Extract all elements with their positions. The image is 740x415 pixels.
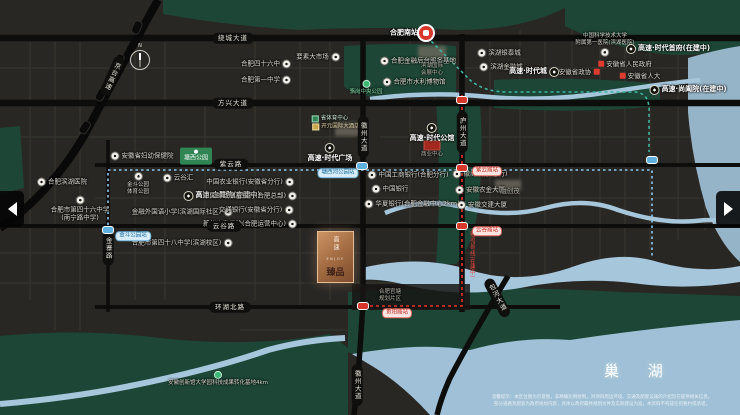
poi-icon [163, 174, 172, 183]
park-icon [214, 371, 222, 379]
logo-project-name: 臻品 [326, 265, 344, 278]
map-label: 云谷汇 [163, 174, 194, 183]
project-icon [626, 44, 636, 54]
project-icon [549, 67, 559, 77]
government-icon [598, 61, 604, 67]
poi-icon [367, 171, 376, 180]
map-label: 滨湖银泰城 [477, 49, 521, 58]
poi-icon [600, 48, 609, 57]
poi-icon [76, 196, 85, 205]
compass-icon: N [130, 50, 150, 70]
map-label: 合肥官塘规划片区 [379, 289, 401, 303]
disclaimer-line2: 部分道路及配套为政府规划内容，具体以政府最终规划文件及实际建设为准，本资料不构成… [468, 401, 736, 408]
map-label: 合肥滨湖医院 [37, 178, 87, 187]
map-label-text: 商业中心 [421, 151, 443, 158]
map-label-text: 安徽省妇幼保健院 [122, 152, 174, 160]
project-icon [649, 85, 659, 95]
project-icon [427, 123, 437, 133]
map-label-text: 安徽省人民政府 [606, 60, 652, 68]
map-label-text: 安徽省人大 [628, 72, 661, 80]
map-label-text: 合肥市水利博物馆 [394, 78, 446, 86]
road-label: 环湖北路 [209, 302, 251, 313]
map-label: 中国银行 [372, 185, 409, 194]
metro-station-label: 紫云路站 [472, 166, 502, 176]
map-label-text: 合肥南站 [390, 28, 418, 37]
government-icon [593, 69, 599, 75]
map-label: 骆岗中央公园 [349, 80, 382, 96]
logo-brand: 高速 [331, 236, 340, 252]
map-label: 省体育中心 [312, 115, 349, 122]
map-label: 合肥第一中学 [241, 76, 291, 85]
poi-icon [479, 63, 488, 72]
left-arrow-icon [8, 202, 17, 216]
map-label-text: 高速·时代首府(在建中) [638, 44, 710, 53]
metro-station-label: 贵阳路站 [382, 308, 412, 318]
project-icon [325, 143, 335, 153]
poi-icon [380, 57, 389, 66]
road-label: 轨道5号线(在建中) [468, 231, 474, 277]
map-label: 华夏银行(合肥金融中心2km) [364, 200, 459, 209]
map-label-text: 中国银行 [383, 185, 409, 193]
map-label-text: 中国农业银行(安徽省分行) [206, 178, 283, 186]
project-logo: 高速 ENJOY 臻品 [317, 231, 354, 283]
map-label: 高速·时代广场 [308, 143, 353, 163]
map-label-text: 融创茂 [500, 187, 520, 195]
metro-station-label: 金斗公园站 [115, 231, 151, 241]
map-label: 交通银行(安徽省分行) [219, 206, 294, 215]
map-label: 滨湖国际会展中心 [421, 63, 443, 77]
map-label: 融创茂 [500, 187, 520, 195]
location-map: 绕城大道方兴大道紫云路云谷路环湖北路徽州大道徽州大道庐州大道金寨路包河大道京台高… [0, 0, 740, 415]
disclaimer-line1: 温馨提示：本区位图为示意图，非精确比例绘制，对项目周边环境、交通及配套设施的介绍… [468, 394, 736, 401]
map-label-text: 中国工商银行(合肥分行) [378, 171, 448, 179]
project-icon [183, 191, 193, 201]
train-icon [423, 30, 429, 36]
map-label-text: 安徽创新馆大学园科技成果转化基地4km [168, 380, 268, 387]
logo-latin: ENJOY [326, 257, 344, 261]
metro-station-label: 云谷路站 [472, 226, 502, 236]
map-label-text: 金融外国语小学(滨湖国际社区) [132, 208, 222, 216]
map-label-text: 骆岗中央公园 [349, 89, 382, 96]
poi-icon [372, 185, 381, 194]
lake-label: 巢 湖 [604, 360, 675, 381]
metro-station-marker [456, 164, 468, 172]
poi-icon [285, 178, 294, 187]
metro-station-marker [456, 96, 468, 104]
map-label-text: 合肥官塘规划片区 [379, 289, 401, 303]
compass-needle [139, 53, 141, 67]
map-label: 开元国际大酒店 [312, 123, 360, 130]
metro-station-marker [357, 302, 369, 310]
carousel-right-arrow[interactable] [716, 191, 740, 227]
map-label-text: 华夏银行(合肥金融中心2km) [375, 200, 459, 208]
poi-icon [383, 78, 392, 87]
map-label: 安徽省人民政府 [598, 60, 652, 68]
metro-station-label: 塘西河公园站 [317, 168, 358, 178]
poi-icon [111, 152, 120, 161]
map-label-text: 合肥市第四十六中学(南宁路中学) [51, 206, 110, 223]
map-label: 安徽交建大厦 [457, 201, 507, 210]
government-icon [620, 73, 626, 79]
map-label-text: 安徽省政协 [559, 68, 592, 76]
map-label-text: 高速·时代广场 [308, 154, 353, 163]
map-label-text: 高速·尚阖院(在建中) [661, 85, 726, 94]
map-label-text: 要素大市场 [296, 53, 329, 61]
map-label-text: 中国邮政储蓄银行(合肥总部) [203, 192, 286, 200]
map-label: 高速·时代城 [509, 67, 559, 77]
map-label-text: 省体育中心 [321, 115, 349, 122]
poi-icon [37, 178, 46, 187]
poi-icon [288, 220, 297, 229]
map-label: 合肥四十六中 [241, 60, 291, 69]
poi-icon [282, 60, 291, 69]
map-label: 安徽省政协 [559, 68, 600, 76]
road-label: 绕城大道 [212, 33, 254, 44]
map-label-text: 开元国际大酒店 [321, 123, 360, 130]
road-label: 京台高速 [99, 55, 126, 98]
map-label: 金斗公园体育公园 [127, 172, 149, 196]
labels-layer: 绕城大道方兴大道紫云路云谷路环湖北路徽州大道徽州大道庐州大道金寨路包河大道京台高… [0, 0, 740, 415]
hefei-south-station-marker [417, 24, 435, 42]
map-label: 金融外国语小学(滨湖国际社区) [132, 208, 233, 217]
road-label: 庐州大道 [457, 111, 468, 153]
poi-icon [331, 53, 340, 62]
map-label: 安徽省妇幼保健院 [111, 152, 174, 161]
map-label: 要素大市场 [296, 53, 340, 62]
map-label: 合肥金融后台服务基地 [380, 57, 456, 66]
road-label: 云谷路 [207, 221, 242, 232]
map-label-text: 高速·时代城 [509, 67, 547, 76]
map-label: 商业中心 [421, 151, 443, 158]
poi-icon [223, 239, 232, 248]
map-label-text: 安徽农金大厦 [466, 186, 505, 194]
map-label: 安徽创新馆大学园科技成果转化基地4km [168, 371, 268, 387]
map-label-text: 安徽交建大厦 [468, 201, 507, 209]
road-label: 包河大道 [483, 277, 512, 319]
map-label: 高速·尚阖院(在建中) [649, 85, 726, 95]
metro-station-marker [646, 156, 658, 164]
map-label-text: 塘西公园 [184, 155, 208, 163]
map-label: 合肥市第四十六中学(南宁路中学) [51, 196, 110, 223]
park-icon [362, 80, 370, 88]
poi-icon [284, 206, 293, 215]
metro-station-marker [102, 226, 114, 234]
metro-station-marker [456, 222, 468, 230]
right-arrow-icon [724, 202, 733, 216]
map-label-text: 金斗公园体育公园 [127, 182, 149, 196]
map-label: 高速·时代首府(在建中) [626, 44, 710, 54]
map-label-text: 滨湖银泰城 [488, 49, 521, 57]
road-label: 徽州大道 [358, 116, 369, 158]
poi-icon [364, 200, 373, 209]
map-label: 中国工商银行(合肥分行) [367, 171, 448, 180]
map-label-text: 交通银行(安徽省分行) [219, 206, 283, 214]
map-label-text: 合肥滨湖医院 [48, 178, 87, 186]
map-label: 合肥南站 [390, 28, 418, 37]
map-label: 塘西公园 [180, 148, 212, 165]
carousel-left-arrow[interactable] [0, 191, 24, 227]
map-label-text: 合肥第一中学 [241, 76, 280, 84]
poi-icon [288, 192, 297, 201]
map-label-text: 高速·时代公馆 [410, 134, 455, 143]
metro-station-marker [356, 162, 368, 170]
map-label-text: 合肥四十六中 [241, 60, 280, 68]
road-label: 徽州大道 [352, 364, 363, 406]
map-label-text: 云谷汇 [174, 174, 194, 182]
map-label: 合肥市水利博物馆 [383, 78, 446, 87]
road-label: 金寨路 [103, 231, 114, 266]
map-label: 高速·时代公馆 [410, 123, 455, 143]
map-label: 安徽农金大厦 [455, 186, 505, 195]
poi-icon [133, 172, 142, 181]
map-label: 中国农业银行(安徽省分行) [206, 178, 294, 187]
road-label: 紫云路 [214, 159, 249, 170]
road-label: 方兴大道 [212, 98, 254, 109]
map-label: 中国邮政储蓄银行(合肥总部) [203, 192, 297, 201]
poi-icon [455, 186, 464, 195]
poi-icon [282, 76, 291, 85]
disclaimer: 温馨提示：本区位图为示意图，非精确比例绘制，对项目周边环境、交通及配套设施的介绍… [468, 394, 736, 408]
poi-icon [477, 49, 486, 58]
map-label-text: 滨湖国际会展中心 [421, 63, 443, 77]
map-label: 安徽省人大 [620, 72, 661, 80]
poi-icon [457, 201, 466, 210]
compass-north-label: N [138, 43, 142, 49]
